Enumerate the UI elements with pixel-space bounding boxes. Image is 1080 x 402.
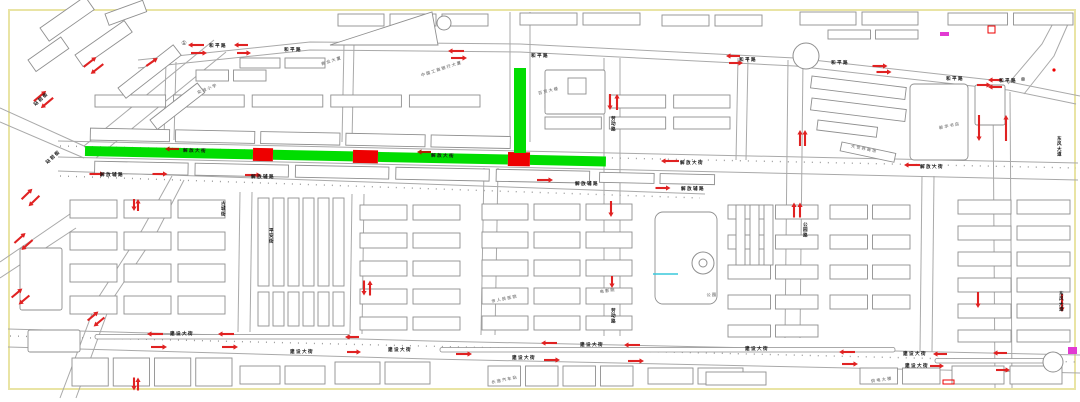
building-block	[252, 95, 323, 107]
building-slab	[273, 292, 284, 326]
roundabout-circle	[437, 16, 451, 30]
building-block	[534, 232, 580, 248]
building-block	[124, 296, 171, 314]
street-label: 和平路	[830, 59, 849, 66]
building-block	[830, 205, 868, 219]
building-slab	[258, 292, 269, 326]
building-block	[586, 204, 632, 220]
street-label: 建设大街	[289, 348, 314, 355]
building-block	[958, 252, 1011, 266]
building-block	[706, 372, 766, 385]
building-block	[862, 12, 918, 25]
building-block	[586, 232, 632, 248]
building-slab	[288, 292, 299, 326]
building-block	[776, 265, 819, 279]
building-block	[261, 132, 340, 146]
building-block	[958, 226, 1011, 240]
building-block	[482, 232, 528, 248]
building-block	[95, 95, 166, 107]
building-block	[196, 70, 229, 81]
building-block	[948, 13, 1008, 25]
building-block	[876, 30, 919, 39]
street-label: 古城街	[220, 200, 227, 217]
building-slab	[318, 198, 329, 286]
building-block	[563, 366, 596, 386]
building-block	[599, 172, 654, 183]
street-label: 公园路	[803, 222, 809, 238]
street-label: 建设大街	[169, 330, 194, 337]
building-block	[526, 366, 559, 386]
building-block	[155, 358, 191, 386]
building-block	[674, 117, 730, 129]
red-intersection-block	[353, 150, 378, 163]
street-label: 劳动路	[611, 115, 617, 132]
building-block	[1017, 278, 1070, 292]
building-block	[728, 295, 771, 309]
building-block	[776, 205, 819, 219]
street-label: 解放辅路	[681, 185, 705, 192]
building-block	[335, 362, 380, 384]
building-outline	[28, 330, 80, 352]
building-block	[482, 204, 528, 220]
street-label: 和平路	[283, 46, 302, 53]
building-block	[660, 174, 715, 185]
building-block	[409, 95, 480, 107]
map-page: 和平路和平路和平路和平路和平路和平路和平路解放大街解放大街解放大街解放大街解放辅…	[0, 0, 1080, 402]
red-intersection-block	[508, 152, 530, 166]
building-block	[175, 130, 254, 144]
building-block	[124, 232, 171, 250]
building-block	[482, 260, 528, 276]
building-block	[70, 232, 117, 250]
green-avenue-segment	[273, 150, 353, 162]
building-block	[830, 235, 868, 249]
magenta-mark	[940, 32, 949, 36]
building-slab	[318, 292, 329, 326]
building-block	[776, 295, 819, 309]
street-label: 建设大街	[511, 354, 536, 361]
building-block	[178, 264, 225, 282]
building-block	[360, 205, 407, 220]
street-label: 建设大街	[902, 350, 927, 357]
building-block	[583, 13, 640, 25]
building-block	[1017, 200, 1070, 214]
circled-symbol: ①	[181, 40, 186, 47]
building-block	[113, 358, 149, 386]
building-block	[413, 261, 460, 276]
building-block	[586, 260, 632, 276]
building-block	[534, 260, 580, 276]
building-block	[178, 200, 225, 218]
building-block	[1017, 252, 1070, 266]
building-slab	[764, 205, 773, 265]
magenta-mark	[1068, 347, 1077, 354]
building-block	[728, 265, 771, 279]
street-label: 和平路	[530, 52, 549, 59]
building-block	[830, 295, 868, 309]
building-block	[70, 296, 117, 314]
building-block	[234, 70, 267, 81]
building-block	[360, 289, 407, 304]
green-avenue-segment	[530, 155, 606, 167]
street-label: 解放辅路	[251, 173, 275, 180]
building-block	[728, 325, 771, 337]
roundabout-circle	[793, 43, 819, 69]
building-slab	[258, 198, 269, 286]
street-label: 解放大街	[920, 163, 944, 170]
building-block	[285, 58, 325, 68]
building-block	[601, 366, 634, 386]
building-block	[952, 366, 1004, 384]
building-block	[873, 265, 911, 279]
building-block	[346, 133, 425, 147]
building-block	[830, 265, 868, 279]
building-block	[72, 358, 108, 386]
street-label: 建设大街	[387, 346, 412, 353]
building-block	[90, 128, 169, 142]
red-dot	[1052, 68, 1055, 71]
building-slab	[750, 205, 759, 265]
building-block	[396, 167, 490, 181]
street-label: 建设大街	[904, 362, 929, 369]
building-block	[482, 316, 528, 330]
building-block	[70, 264, 117, 282]
building-block	[178, 232, 225, 250]
building-outline	[20, 248, 62, 310]
building-block	[800, 12, 856, 25]
building-block	[240, 58, 280, 68]
building-block	[674, 95, 730, 108]
street-label: 解放大街	[680, 159, 704, 166]
building-block	[648, 368, 693, 384]
building-block	[413, 205, 460, 220]
building-block	[534, 204, 580, 220]
building-outline	[568, 78, 586, 94]
building-block	[360, 317, 407, 330]
building-block	[958, 278, 1011, 292]
building-slab	[303, 292, 314, 326]
building-block	[285, 366, 325, 384]
building-block	[240, 366, 280, 384]
building-block	[534, 316, 580, 330]
building-block	[196, 358, 232, 386]
street-label: 建设大街	[579, 341, 604, 348]
building-block	[958, 200, 1011, 214]
street-label: 和平路	[208, 42, 227, 49]
building-block	[776, 325, 819, 337]
building-block	[534, 288, 580, 304]
street-label: 东风大道	[1059, 290, 1065, 313]
building-block	[1017, 330, 1070, 342]
building-block	[295, 165, 389, 179]
building-block	[331, 95, 402, 107]
building-block	[715, 15, 762, 26]
building-block	[360, 261, 407, 276]
street-label: 平安街	[268, 227, 275, 244]
building-block	[413, 233, 460, 248]
street-label: 建设大街	[744, 345, 769, 352]
building-block	[586, 316, 632, 330]
street-label: 解放辅路	[575, 180, 599, 187]
building-block	[1017, 226, 1070, 240]
green-street-vertical	[514, 68, 526, 153]
building-block	[520, 13, 577, 25]
roundabout-circle	[1043, 352, 1063, 372]
building-block	[545, 117, 601, 129]
building-block	[873, 295, 911, 309]
building-block	[338, 14, 384, 26]
building-block	[662, 15, 709, 26]
city-traffic-map: 和平路和平路和平路和平路和平路和平路和平路解放大街解放大街解放大街解放大街解放辅…	[0, 0, 1080, 402]
red-intersection-block	[253, 148, 273, 161]
building-slab	[288, 198, 299, 286]
street-label: 公园	[707, 291, 718, 297]
building-block	[360, 233, 407, 248]
street-label: 劳动路	[611, 307, 617, 324]
building-block	[413, 289, 460, 304]
building-block	[178, 296, 225, 314]
building-block	[958, 304, 1011, 318]
building-block	[124, 200, 171, 218]
building-slab	[333, 198, 344, 286]
building-block	[903, 368, 941, 384]
building-block	[828, 30, 871, 39]
boulevard-median	[935, 359, 1060, 364]
street-label: 解放辅路	[100, 171, 124, 178]
roundabout-circle	[699, 259, 707, 267]
building-slab	[333, 292, 344, 326]
boulevard-median	[440, 348, 895, 353]
building-slab	[736, 205, 745, 265]
building-block	[1014, 13, 1074, 25]
street-label: 和平路	[945, 75, 964, 82]
building-block	[958, 330, 1011, 342]
building-block	[385, 362, 430, 384]
building-block	[776, 235, 819, 249]
building-block	[70, 200, 117, 218]
street-label: 和平路	[998, 77, 1017, 84]
street-label: 和平路	[738, 56, 757, 63]
building-block	[413, 317, 460, 330]
building-block	[609, 117, 665, 129]
circled-symbol: ⊗	[1020, 76, 1025, 83]
street-label: 东风大道	[1057, 135, 1063, 158]
building-block	[873, 235, 911, 249]
building-block	[431, 135, 510, 149]
building-slab	[303, 198, 314, 286]
building-block	[873, 205, 911, 219]
building-block	[124, 264, 171, 282]
